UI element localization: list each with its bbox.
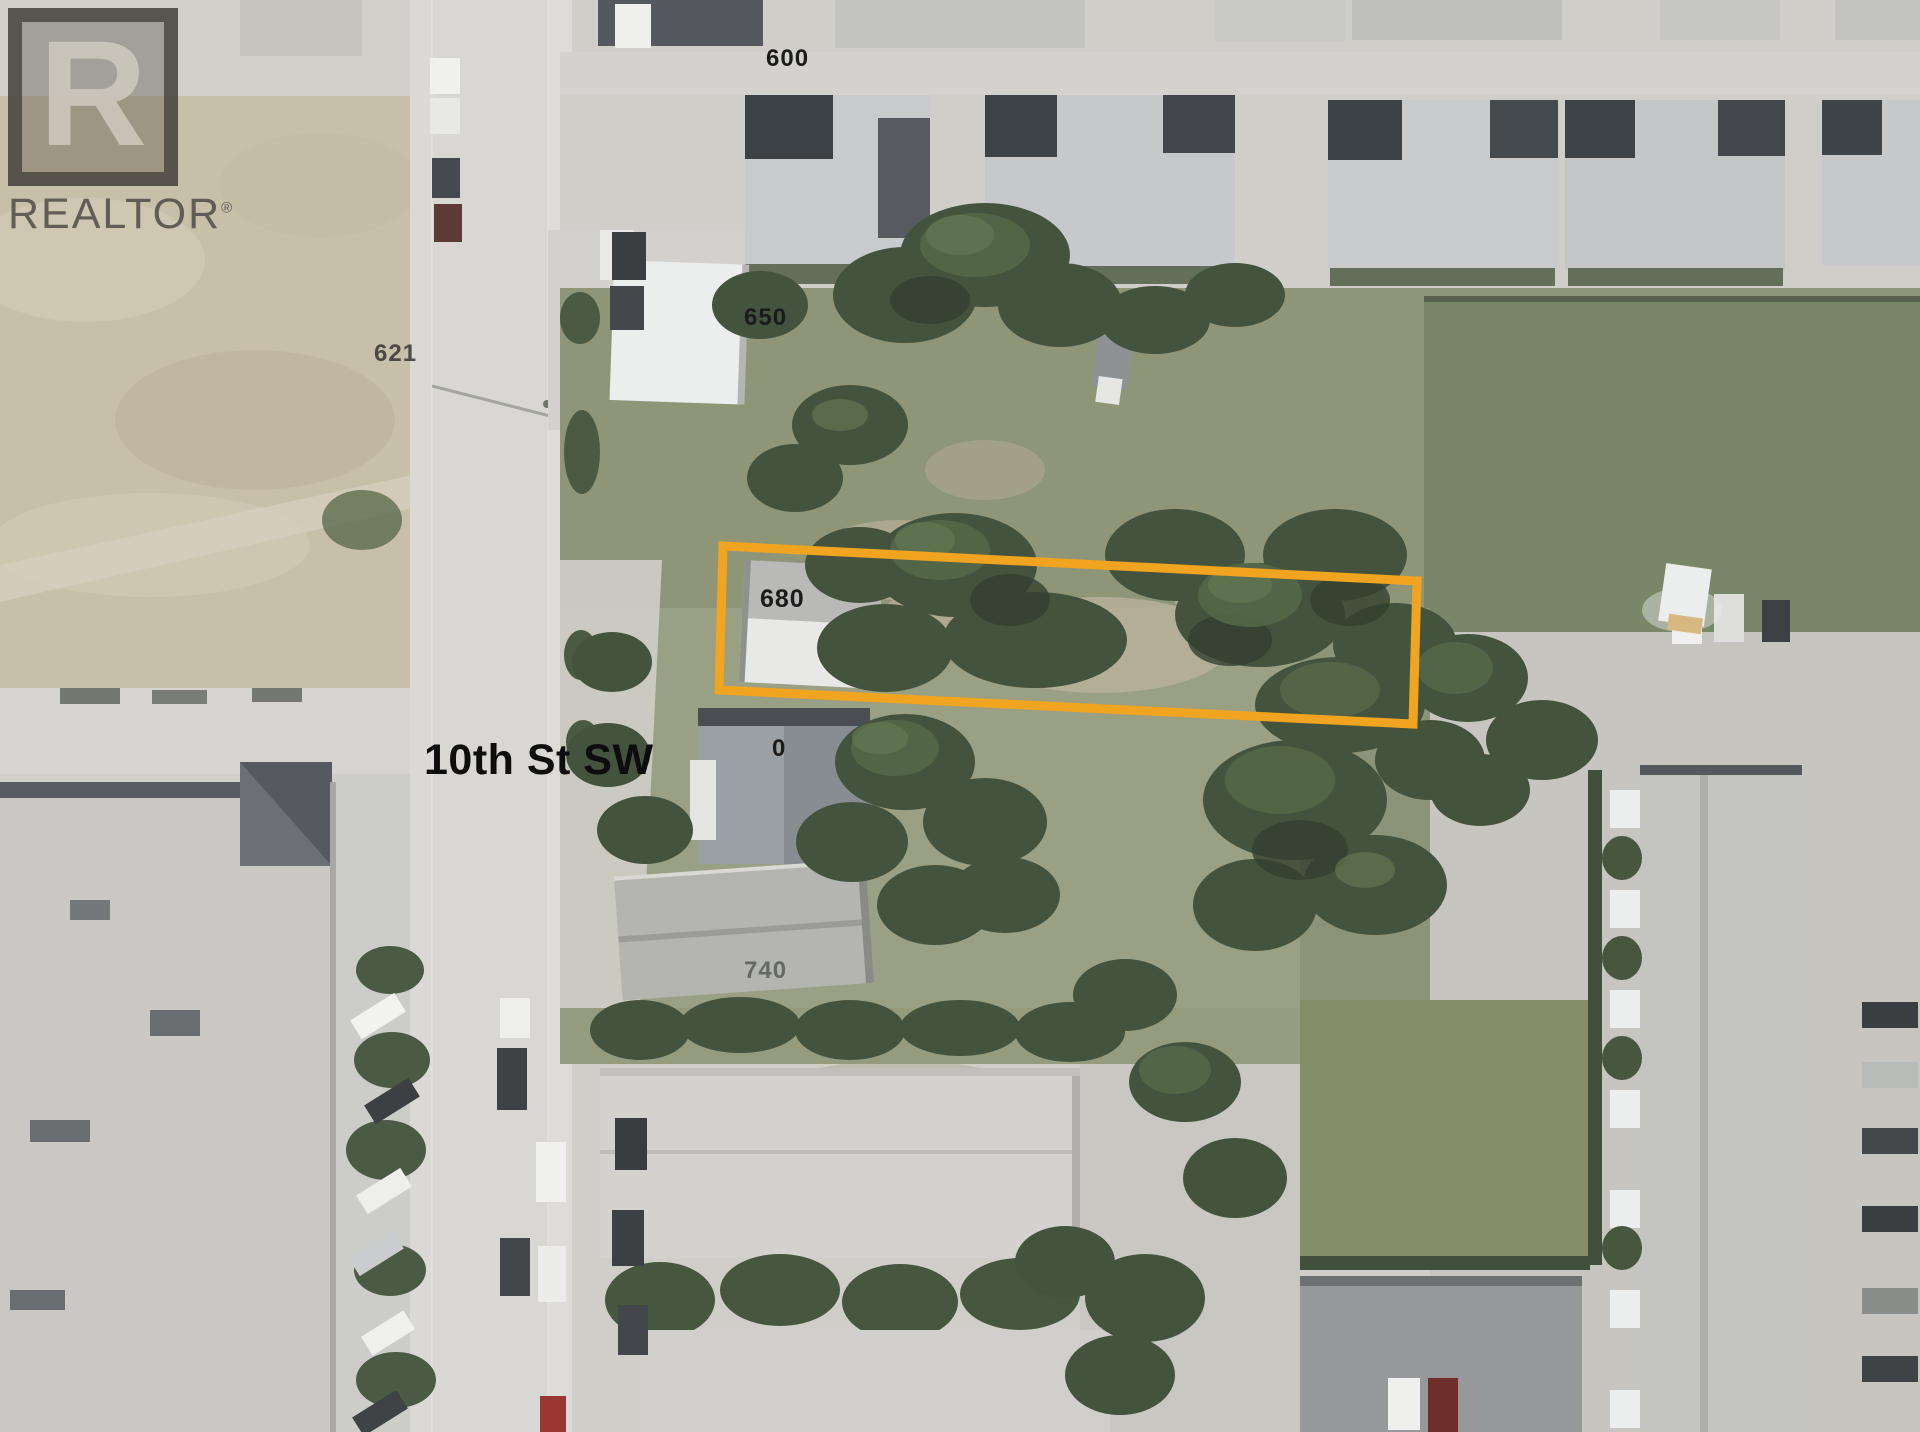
realtor-logo-r: R — [39, 18, 147, 168]
house-c — [1328, 100, 1558, 270]
realtor-watermark: R REALTOR® — [8, 8, 232, 239]
hedge-row — [590, 997, 1125, 1062]
label-lot-680: 680 — [760, 587, 805, 612]
street-name-label: 10th St SW — [424, 736, 654, 785]
label-lot-700-partial: 0 — [772, 737, 786, 761]
aerial-map: 600 621 650 680 0 740 10th St SW R REALT… — [0, 0, 1920, 1432]
label-lot-600: 600 — [766, 47, 809, 71]
west-sidewalk — [410, 0, 432, 1432]
townhouse-building — [1640, 765, 1802, 1432]
house-e — [1822, 100, 1920, 265]
label-lot-740: 740 — [744, 959, 787, 983]
warehouse-building — [0, 762, 336, 1432]
house-a — [745, 95, 930, 267]
white-car — [1388, 1378, 1420, 1430]
registered-trademark-symbol: ® — [221, 200, 232, 217]
fence-line — [1424, 296, 1920, 302]
aerial-photo-canvas — [0, 0, 1920, 1432]
realtor-logo-box: R — [8, 8, 178, 186]
label-lot-650: 650 — [744, 306, 787, 330]
label-lot-621: 621 — [374, 342, 417, 366]
hedge-horizontal — [1300, 1256, 1590, 1270]
building-south-1 — [600, 1068, 1080, 1258]
lane-north — [560, 52, 1920, 102]
realtor-brand-text: REALTOR — [8, 190, 221, 238]
red-car — [540, 1396, 566, 1432]
realtor-wordmark: REALTOR® — [8, 190, 232, 239]
house-d — [1565, 100, 1785, 270]
building-south-2 — [640, 1330, 1110, 1432]
hedge-vertical — [1588, 770, 1602, 1265]
lawn-southeast — [1300, 1000, 1596, 1262]
maroon-car — [1428, 1378, 1458, 1432]
